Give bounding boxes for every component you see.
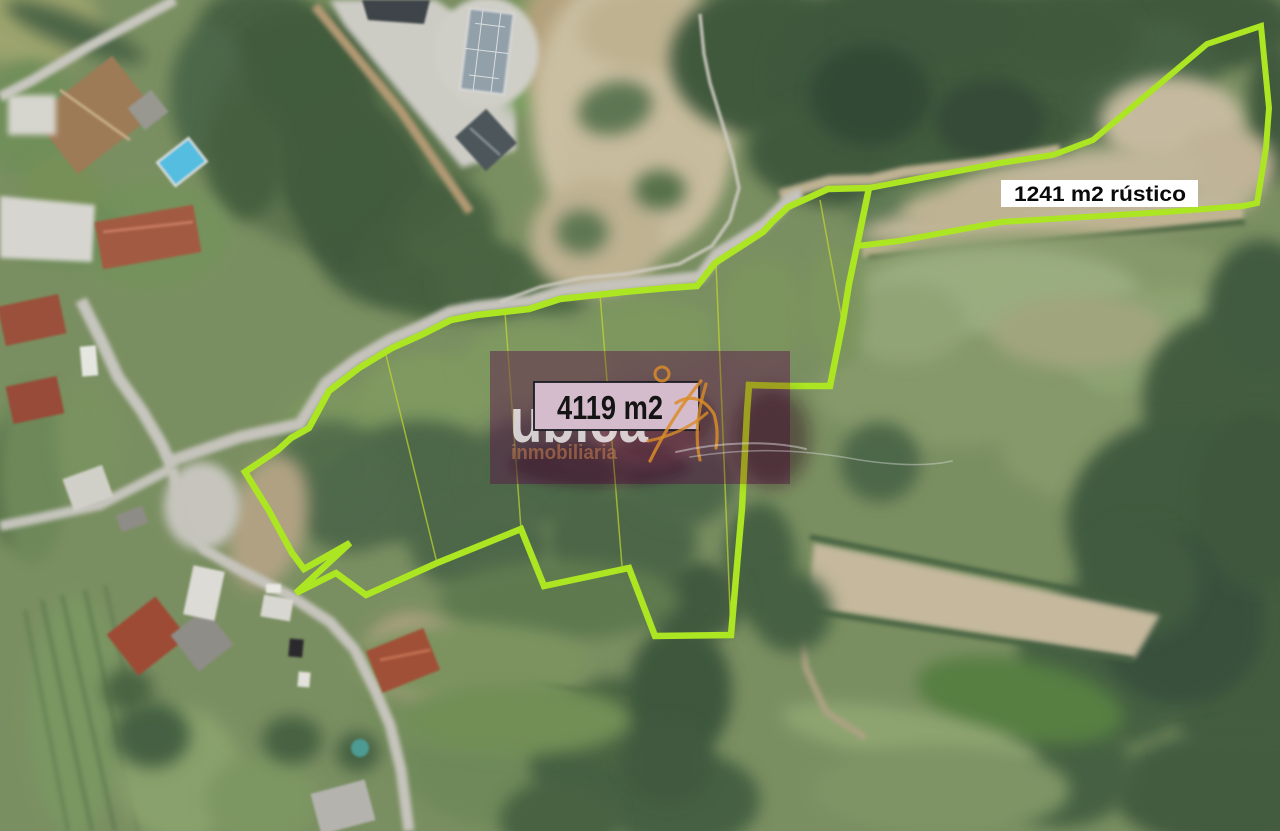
svg-text:4119 m2: 4119 m2 — [557, 389, 663, 426]
svg-text:inmobiliaria: inmobiliaria — [511, 442, 618, 464]
svg-text:1241 m2 rústico: 1241 m2 rústico — [1014, 183, 1186, 206]
